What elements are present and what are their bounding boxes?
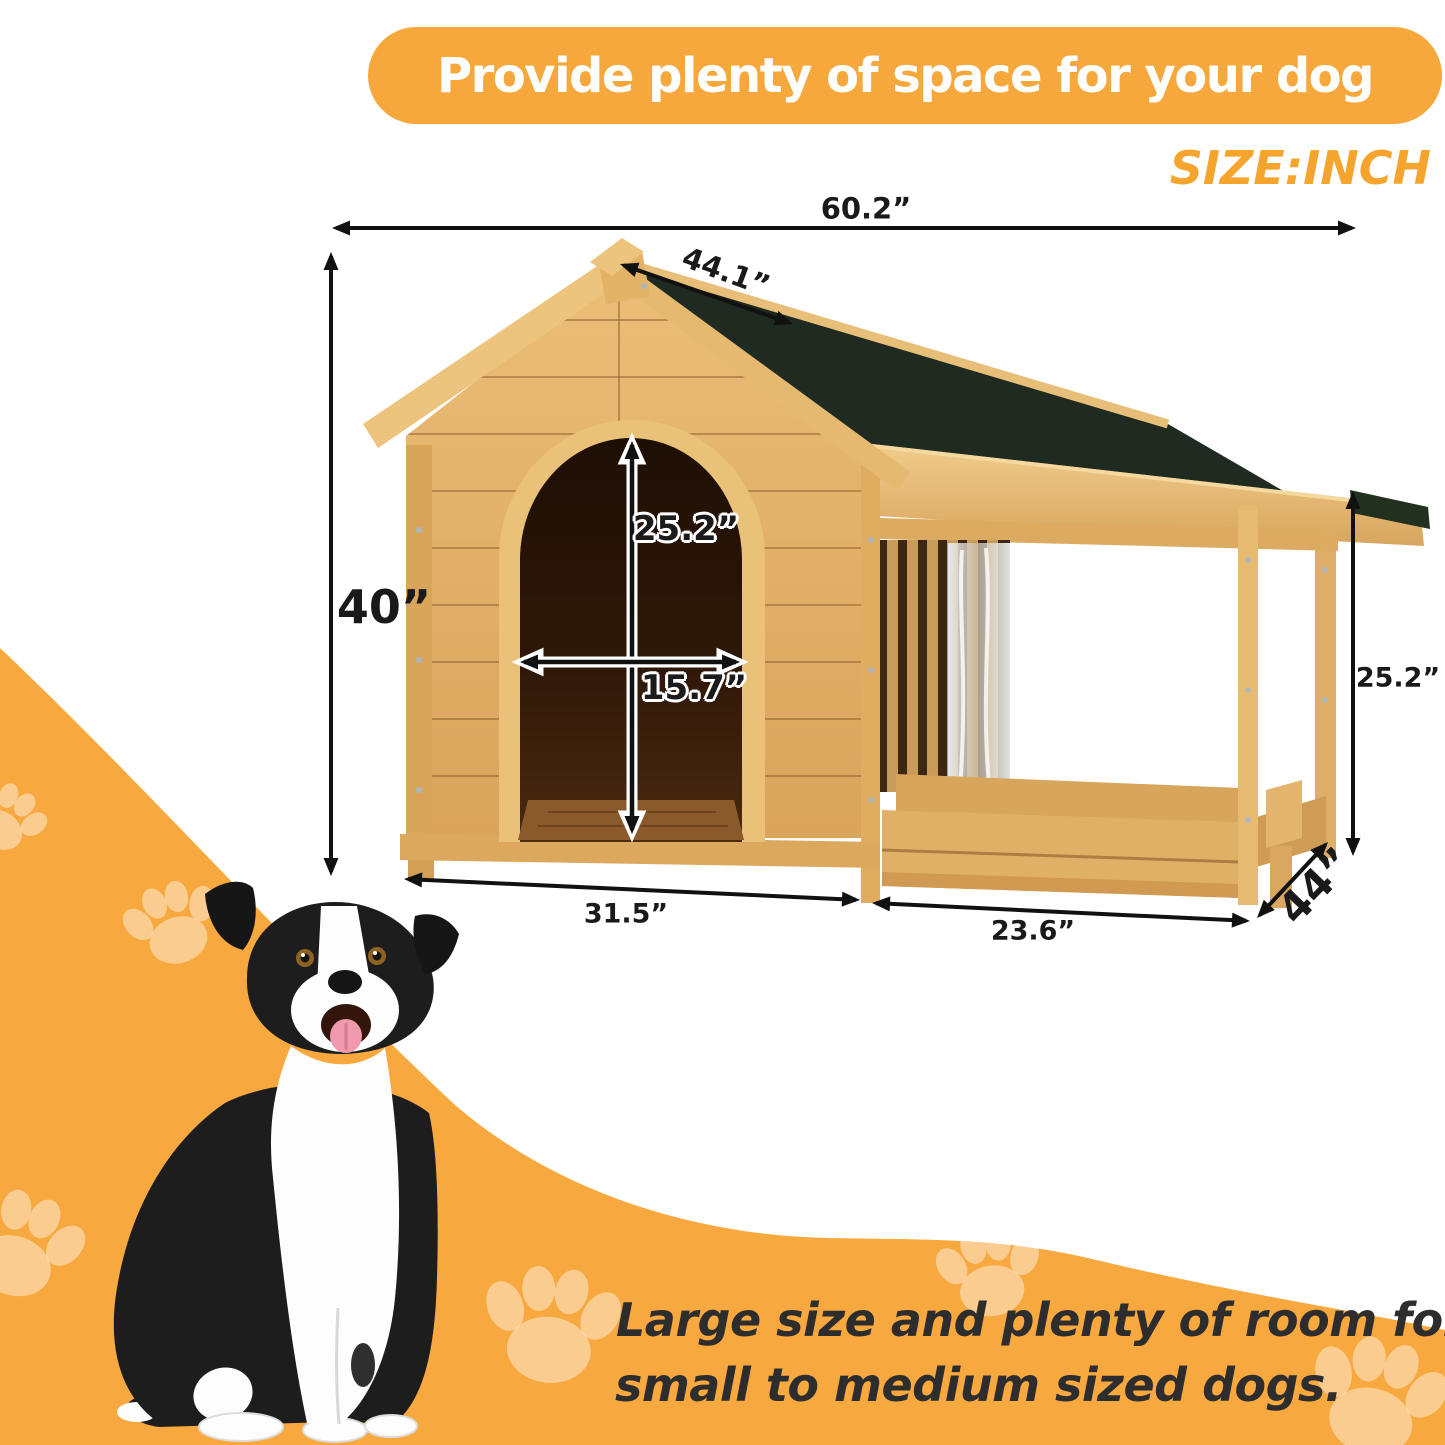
dim-house-base-width: 31.5” [584, 901, 668, 928]
dim-door-height: 25.2” [633, 512, 739, 546]
product-infographic: Provide plenty of space for your dog SIZ… [0, 0, 1445, 1445]
dim-door-width: 15.7” [641, 671, 747, 705]
title-banner: Provide plenty of space for your dog [368, 27, 1442, 124]
dim-overall-height: 40” [337, 584, 431, 630]
dim-porch-height: 25.2” [1356, 665, 1440, 692]
dim-overall-width: 60.2” [821, 195, 912, 224]
footer-line-2: small to medium sized dogs. [615, 1358, 1342, 1412]
scene-graphic [0, 0, 1445, 1445]
banner-title: Provide plenty of space for your dog [437, 48, 1373, 104]
dog-house-illustration [363, 238, 1430, 908]
dim-porch-base-width: 23.6” [991, 918, 1075, 945]
size-unit-label: SIZE:INCH [1170, 141, 1431, 195]
footer-line-1: Large size and plenty of room for [616, 1293, 1445, 1347]
